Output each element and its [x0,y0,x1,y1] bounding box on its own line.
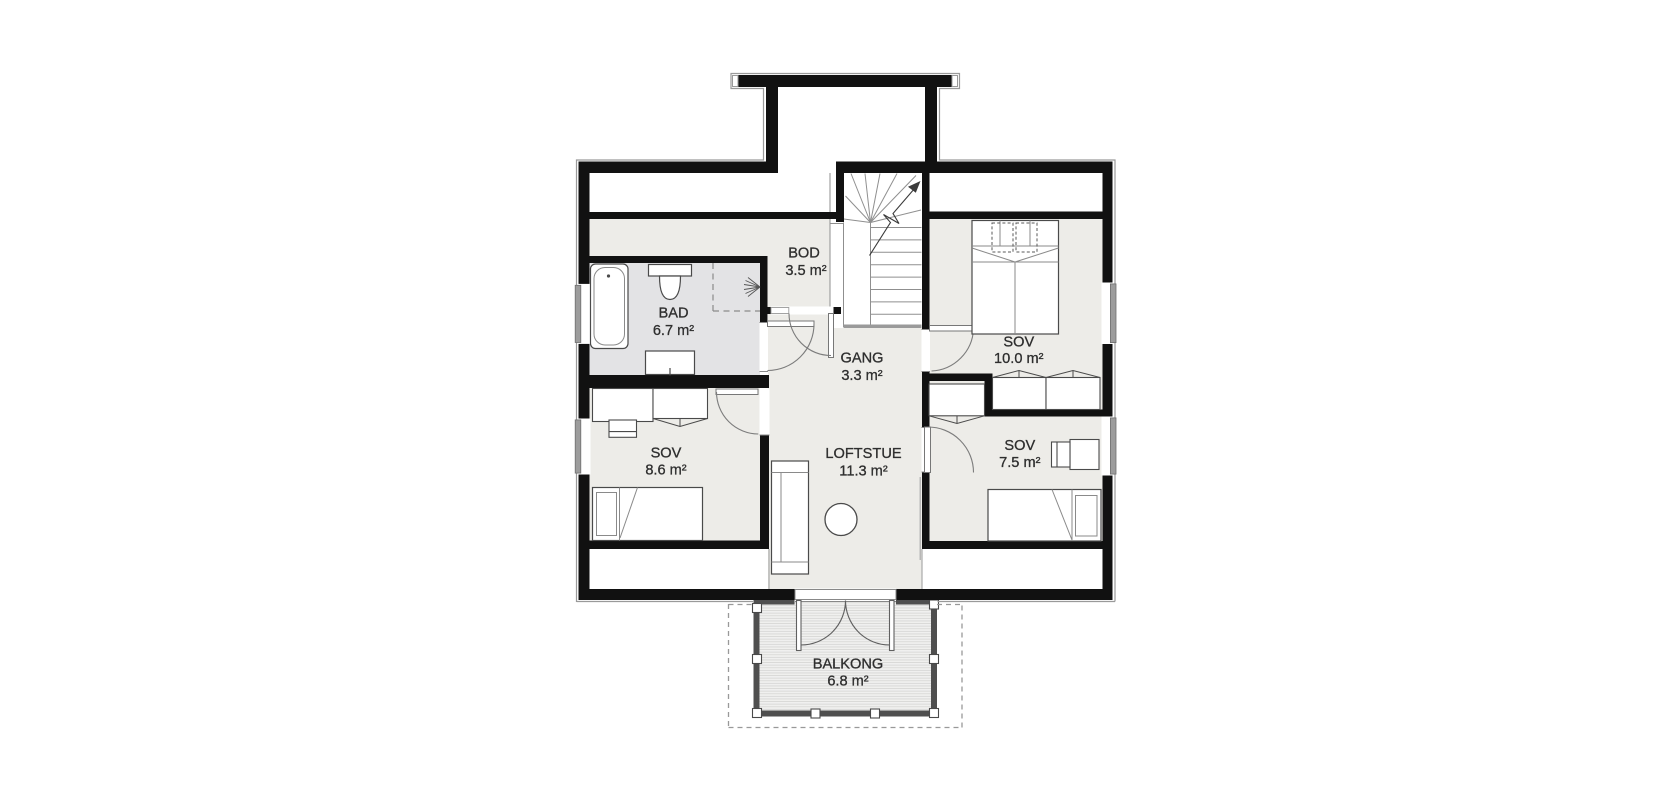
svg-text:SOV: SOV [651,445,682,461]
svg-text:BAD: BAD [658,306,688,322]
svg-text:3.3 m²: 3.3 m² [841,368,882,384]
svg-text:6.8 m²: 6.8 m² [827,673,868,689]
svg-text:7.5 m²: 7.5 m² [999,455,1040,471]
svg-text:3.5 m²: 3.5 m² [785,263,826,279]
svg-text:6.7 m²: 6.7 m² [653,323,694,339]
svg-text:SOV: SOV [1004,438,1035,454]
svg-text:SOV: SOV [1003,335,1034,351]
svg-text:GANG: GANG [841,351,884,367]
svg-text:11.3 m²: 11.3 m² [839,463,888,479]
svg-text:10.0 m²: 10.0 m² [994,351,1044,367]
svg-text:BOD: BOD [788,246,820,262]
svg-text:LOFTSTUE: LOFTSTUE [825,446,901,462]
svg-text:8.6 m²: 8.6 m² [645,463,686,479]
svg-text:BALKONG: BALKONG [813,656,884,672]
